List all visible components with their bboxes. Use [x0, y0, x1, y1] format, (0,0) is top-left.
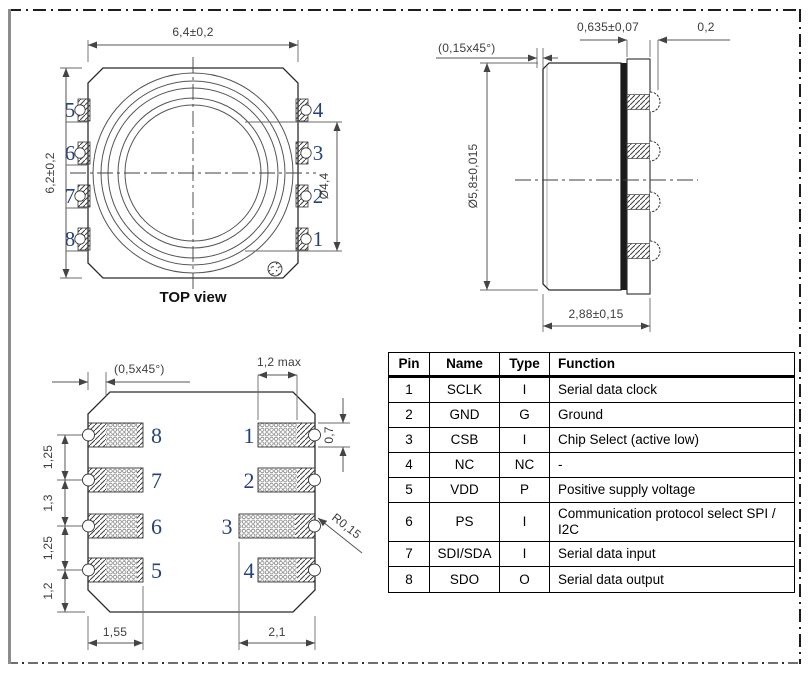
table-cell-type: G: [500, 403, 550, 428]
dim-label-castellation: 0,2: [697, 20, 714, 34]
cap-rim-side: [621, 63, 627, 290]
pad-3: [239, 514, 321, 538]
dim-label-pitch-3: 1,25: [41, 536, 55, 560]
dim-label-chamfer-bottom: (0,5x45°): [114, 362, 165, 376]
table-cell-pin: 7: [389, 542, 430, 567]
datasheet-package-drawing-page: 5 6 7 8 4 3 2 1 6,4±0,2 6,2±0,2 Ø4,4 TOP…: [0, 0, 811, 673]
dim-label-cap-opening: Ø4,4: [317, 172, 331, 199]
pad-7: [83, 468, 144, 492]
pad-number-5: 5: [151, 558, 162, 583]
table-cell-type: I: [500, 428, 550, 453]
dimension-notch-radius: R0,15: [318, 510, 364, 553]
table-cell-function: Chip Select (active low): [550, 428, 794, 453]
table-cell-type: O: [500, 567, 550, 592]
table-cell-type: I: [500, 378, 550, 403]
pad-number-1: 1: [244, 423, 255, 448]
pin1-marker-icon: [268, 262, 282, 276]
pad-1: [258, 423, 321, 447]
dimension-pad-width: 0,7: [318, 398, 350, 472]
table-cell-type: I: [500, 503, 550, 542]
package-body-top: [70, 57, 316, 289]
table-cell-function: Serial data clock: [550, 378, 794, 403]
pad-number-6: 6: [151, 514, 162, 539]
table-cell-function: Positive supply voltage: [550, 478, 794, 503]
pin-number-1: 1: [313, 227, 324, 251]
table-cell-name: SDI/SDA: [430, 542, 500, 567]
dimension-package-height: 2,88±0,15: [543, 294, 650, 332]
table-header-function: Function: [550, 353, 794, 378]
table-cell-type: NC: [500, 453, 550, 478]
table-header-pin: Pin: [389, 353, 430, 378]
table-cell-function: Serial data output: [550, 567, 794, 592]
table-cell-type: I: [500, 542, 550, 567]
dimension-chamfer-bottom: (0,5x45°): [52, 362, 190, 396]
pad-number-8: 8: [151, 423, 162, 448]
dim-label-pad3-length: 2,1: [268, 625, 285, 639]
table-cell-function: Communication protocol select SPI / I2C: [550, 503, 794, 542]
table-cell-pin: 5: [389, 478, 430, 503]
pad-number-2: 2: [244, 468, 255, 493]
dim-label-pitch-2: 1,3: [41, 494, 55, 511]
dim-label-diameter: Ø5,8±0,015: [466, 144, 480, 209]
top-view-drawing: 5 6 7 8 4 3 2 1 6,4±0,2 6,2±0,2 Ø4,4 TOP…: [30, 10, 380, 320]
table-cell-function: Serial data input: [550, 542, 794, 567]
dim-label-pad-length-max: 1,2 max: [257, 355, 301, 369]
table-cell-type: P: [500, 478, 550, 503]
side-view-drawing: 0,635±0,07 0,2 (0,15x45°) Ø5,8±0,015 2,8…: [430, 10, 805, 340]
table-cell-pin: 1: [389, 378, 430, 403]
table-cell-name: NC: [430, 453, 500, 478]
table-cell-name: SDO: [430, 567, 500, 592]
pad-6: [83, 514, 144, 538]
dim-label-notch-radius: R0,15: [329, 510, 364, 541]
cap-cylinder-side: [543, 63, 621, 290]
table-header-name: Name: [430, 353, 500, 378]
table-cell-name: GND: [430, 403, 500, 428]
table-cell-pin: 8: [389, 567, 430, 592]
pad-number-4: 4: [244, 558, 255, 583]
dimension-diameter: Ø5,8±0,015: [466, 63, 538, 290]
pad-number-3: 3: [222, 514, 233, 539]
dim-label-height: 6,2±0,2: [43, 152, 57, 193]
dim-label-pad-width: 0,7: [322, 426, 336, 443]
dim-label-substrate: 0,635±0,07: [577, 20, 639, 34]
table-cell-pin: 6: [389, 503, 430, 542]
dimension-chamfer-side: (0,15x45°): [436, 41, 558, 68]
pin-number-4: 4: [313, 98, 324, 122]
pad-4: [258, 558, 321, 582]
dim-label-package-height: 2,88±0,15: [568, 307, 623, 321]
pin-number-3: 3: [313, 141, 324, 165]
pad-8: [83, 423, 144, 447]
table-header-type: Type: [500, 353, 550, 378]
dim-label-width: 6,4±0,2: [172, 25, 213, 39]
table-cell-function: Ground: [550, 403, 794, 428]
pad-5: [83, 558, 144, 582]
table-cell-pin: 4: [389, 453, 430, 478]
pad-2: [258, 468, 321, 492]
pin-function-table: Pin Name Type Function 1 SCLK I Serial d…: [388, 352, 795, 593]
table-cell-pin: 2: [389, 403, 430, 428]
bottom-view-drawing: 8 7 6 5 1 2 3 4 1,25 1,3 1,25 1,2: [30, 340, 395, 673]
dim-label-left-pad-length: 1,55: [103, 625, 127, 639]
table-cell-name: SCLK: [430, 378, 500, 403]
dimension-pitch-chain: 1,25 1,3 1,25 1,2: [41, 435, 85, 612]
dim-label-pitch-1: 1,25: [41, 445, 55, 469]
dim-label-edge: 1,2: [41, 582, 55, 599]
table-cell-pin: 3: [389, 428, 430, 453]
frame-border-left: [8, 9, 11, 664]
table-cell-function: -: [550, 453, 794, 478]
dimension-width: 6,4±0,2: [88, 25, 298, 62]
table-cell-name: CSB: [430, 428, 500, 453]
table-cell-name: VDD: [430, 478, 500, 503]
dim-label-chamfer-side: (0,15x45°): [438, 41, 496, 55]
top-view-caption: TOP view: [160, 289, 227, 306]
table-cell-name: PS: [430, 503, 500, 542]
pad-number-7: 7: [151, 468, 162, 493]
